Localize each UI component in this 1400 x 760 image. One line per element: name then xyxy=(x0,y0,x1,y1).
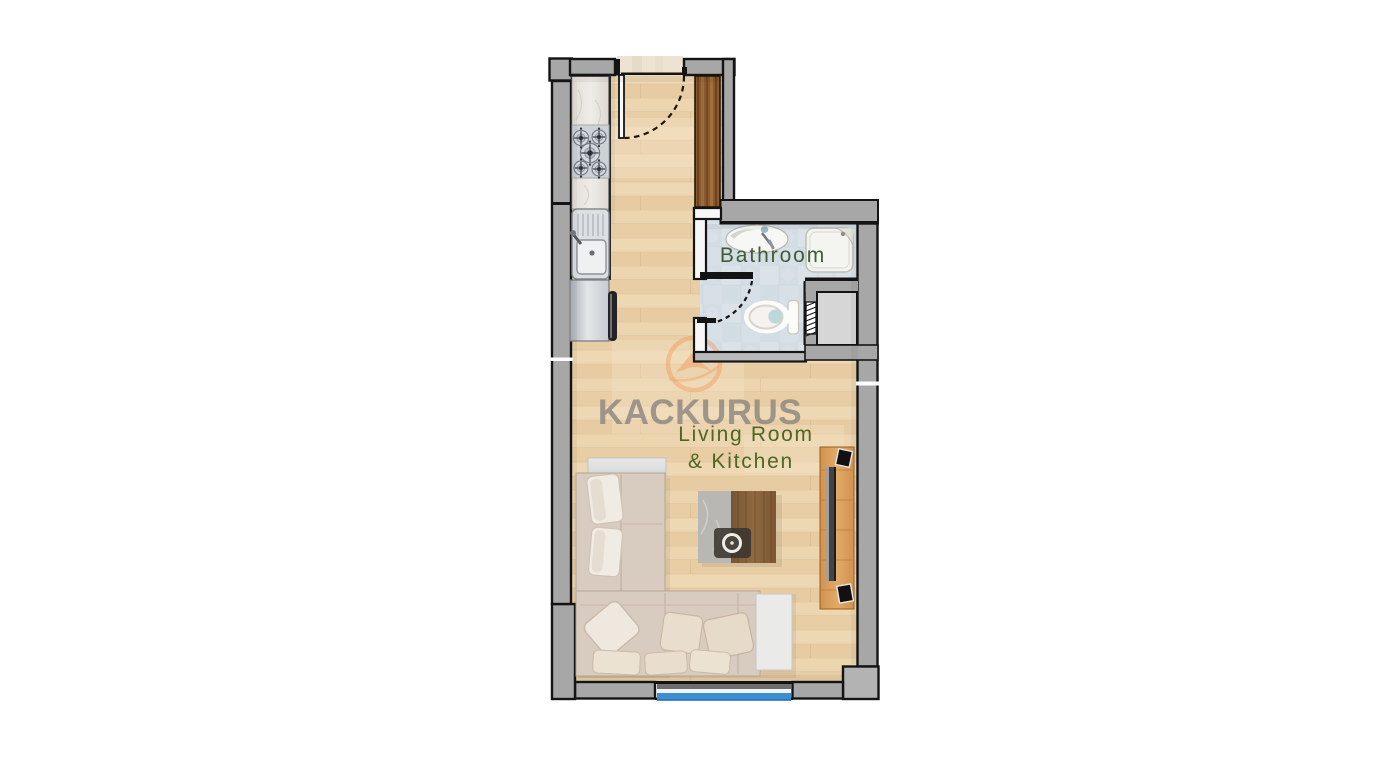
svg-text:Bathroom: Bathroom xyxy=(720,244,826,267)
svg-text:& Kitchen: & Kitchen xyxy=(688,450,794,473)
svg-text:Living Room: Living Room xyxy=(678,423,813,446)
